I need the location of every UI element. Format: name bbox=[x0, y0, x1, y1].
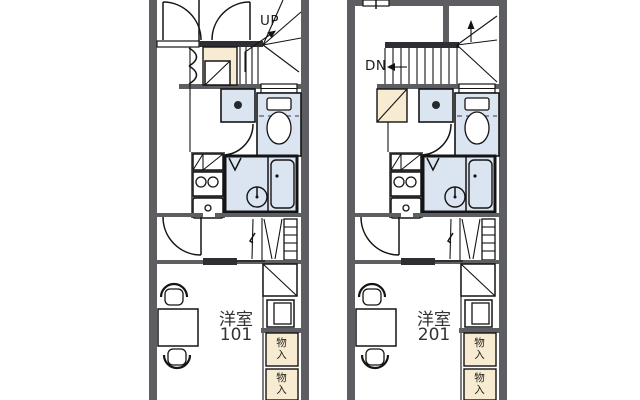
floorplan-canvas: UP 洋室 101 物入 物入 bbox=[0, 0, 640, 400]
storage-label: 物入 bbox=[275, 337, 288, 361]
closet-diagonal-icon bbox=[377, 89, 407, 122]
storage-label: 物入 bbox=[275, 372, 288, 396]
entrance-door-arcs bbox=[163, 0, 250, 41]
stairs-up-label: UP bbox=[260, 13, 279, 29]
wall-segment bbox=[443, 0, 449, 45]
stairs-down-icon bbox=[385, 16, 497, 84]
stairs-down-label: DN bbox=[365, 58, 387, 74]
window-icon bbox=[157, 41, 199, 47]
window-icon bbox=[363, 0, 389, 9]
genkan-icon bbox=[203, 47, 237, 85]
storage-label: 物入 bbox=[473, 337, 486, 361]
floor-plan-unit-201: DN 洋室 201 物入 物入 bbox=[347, 0, 507, 400]
room-number-label: 201 bbox=[396, 325, 472, 345]
floor-plan-unit-101: UP 洋室 101 物入 物入 bbox=[149, 0, 309, 400]
room-number-label: 101 bbox=[198, 325, 274, 345]
storage-label: 物入 bbox=[473, 372, 486, 396]
